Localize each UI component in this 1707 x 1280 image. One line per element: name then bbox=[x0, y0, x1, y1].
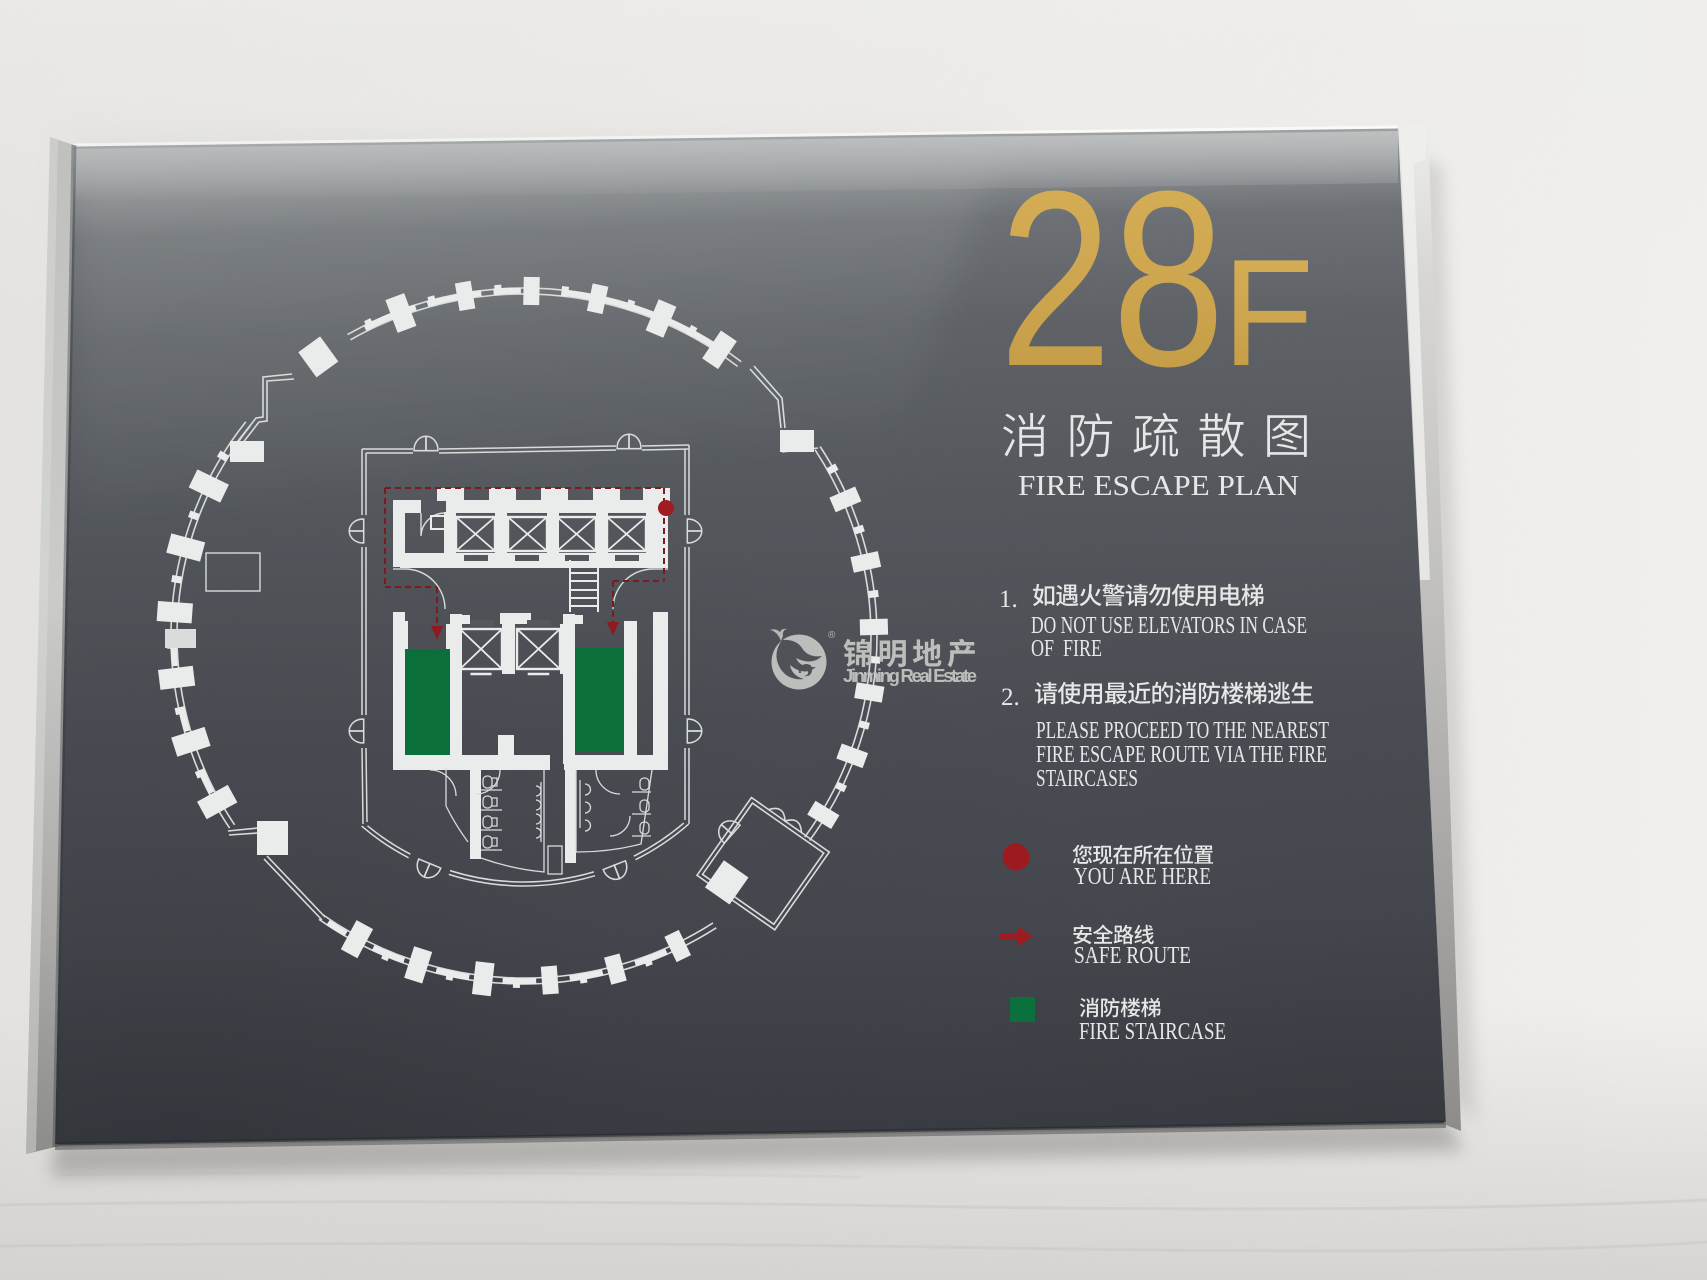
svg-text:OF FIRE: OF FIRE bbox=[1031, 636, 1102, 662]
svg-text:1.: 1. bbox=[999, 586, 1018, 613]
svg-text:PLEASE PROCEED TO THE NEAREST: PLEASE PROCEED TO THE NEAREST bbox=[1036, 718, 1329, 744]
svg-text:STAIRCASES: STAIRCASES bbox=[1036, 766, 1138, 792]
svg-text:FIRE ESCAPE ROUTE VIA THE FIRE: FIRE ESCAPE ROUTE VIA THE FIRE bbox=[1036, 742, 1327, 768]
svg-text:YOU ARE HERE: YOU ARE HERE bbox=[1074, 864, 1211, 890]
svg-text:28: 28 bbox=[999, 139, 1225, 418]
svg-text:FIRE ESCAPE PLAN: FIRE ESCAPE PLAN bbox=[1018, 470, 1299, 502]
svg-text:®: ® bbox=[828, 630, 836, 641]
svg-text:Jinming Real Estate: Jinming Real Estate bbox=[843, 665, 977, 686]
svg-text:F: F bbox=[1222, 228, 1314, 398]
svg-text:2.: 2. bbox=[1001, 684, 1020, 711]
svg-text:FIRE STAIRCASE: FIRE STAIRCASE bbox=[1079, 1019, 1226, 1045]
svg-text:SAFE ROUTE: SAFE ROUTE bbox=[1074, 943, 1191, 969]
